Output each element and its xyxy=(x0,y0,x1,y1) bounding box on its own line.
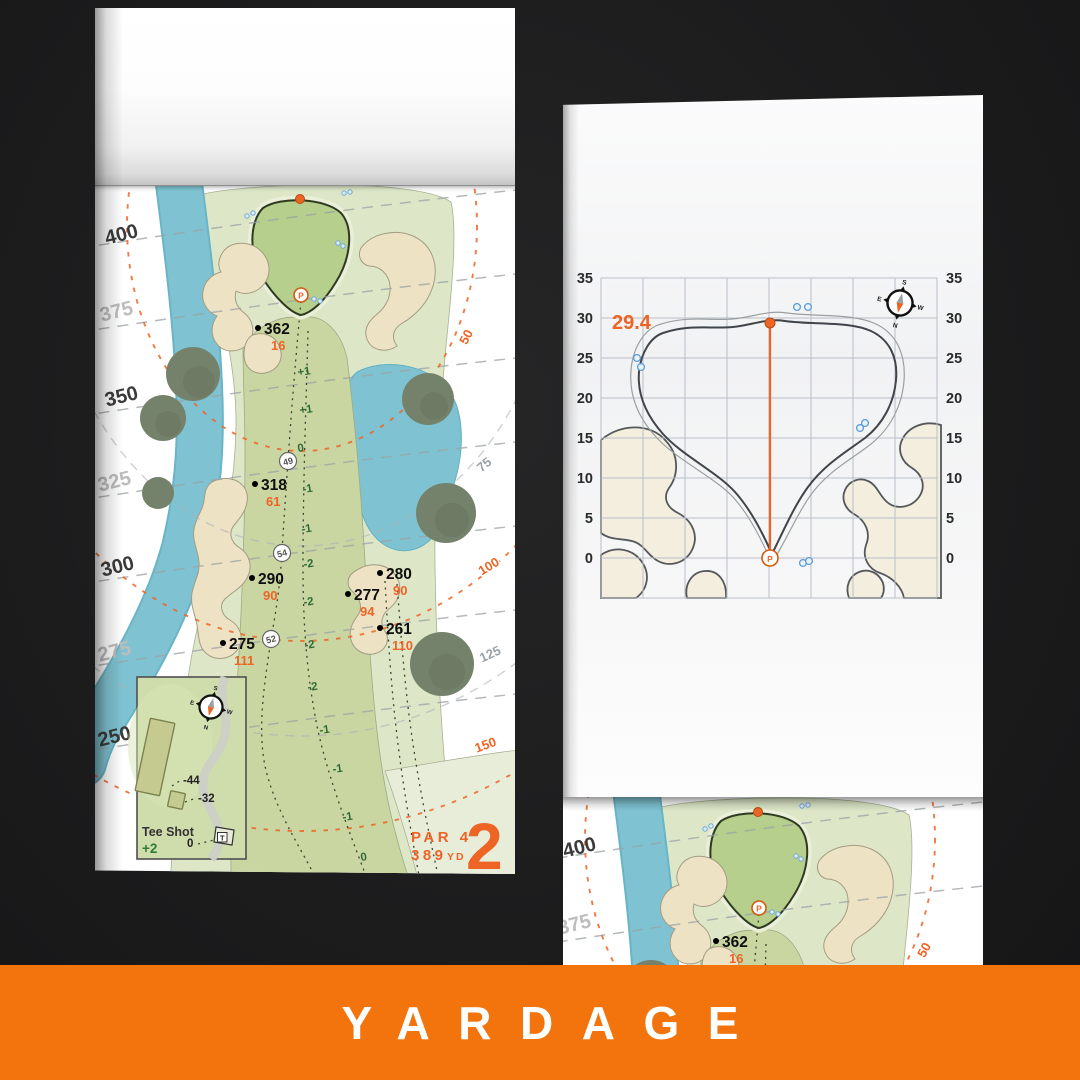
axis-tick: 20 xyxy=(946,391,962,407)
page-curl-blank xyxy=(95,8,515,186)
axis-tick: 35 xyxy=(946,271,962,287)
axis-tick: 15 xyxy=(577,431,593,447)
axis-tick: 0 xyxy=(585,551,593,567)
axis-tick: 25 xyxy=(946,351,962,367)
green-detail-chart: 35 30 25 20 15 10 5 0 35 30 25 20 15 10 … xyxy=(563,95,983,797)
pin-dot xyxy=(765,318,775,328)
axis-tick: 25 xyxy=(577,351,593,367)
green-entry-letter: P xyxy=(767,554,773,564)
axis-tick: 5 xyxy=(946,511,954,527)
axis-tick: 10 xyxy=(577,471,593,487)
axis-tick: 20 xyxy=(577,391,593,407)
photo-background: S W N E xyxy=(0,0,1080,1080)
green-detail-page: 35 30 25 20 15 10 5 0 35 30 25 20 15 10 … xyxy=(563,95,983,797)
axis-tick: 15 xyxy=(946,431,962,447)
axis-tick: 0 xyxy=(946,551,954,567)
banner-title: YARDAGE xyxy=(342,996,767,1050)
axis-tick: 30 xyxy=(577,311,593,327)
yardage-book-left-page xyxy=(95,8,515,874)
axis-tick: 10 xyxy=(946,471,962,487)
yardage-banner: YARDAGE xyxy=(0,965,1080,1080)
axis-tick: 5 xyxy=(585,511,593,527)
axis-tick: 35 xyxy=(577,271,593,287)
hole-map-page xyxy=(95,186,515,875)
axis-tick: 30 xyxy=(946,311,962,327)
hole-map-peek xyxy=(563,797,983,965)
axis-labels-right: 35 30 25 20 15 10 5 0 xyxy=(946,271,962,567)
axis-labels-left: 35 30 25 20 15 10 5 0 xyxy=(577,271,593,567)
front-to-pin-depth: 29.4 xyxy=(612,312,652,334)
next-page-peek xyxy=(563,797,983,965)
